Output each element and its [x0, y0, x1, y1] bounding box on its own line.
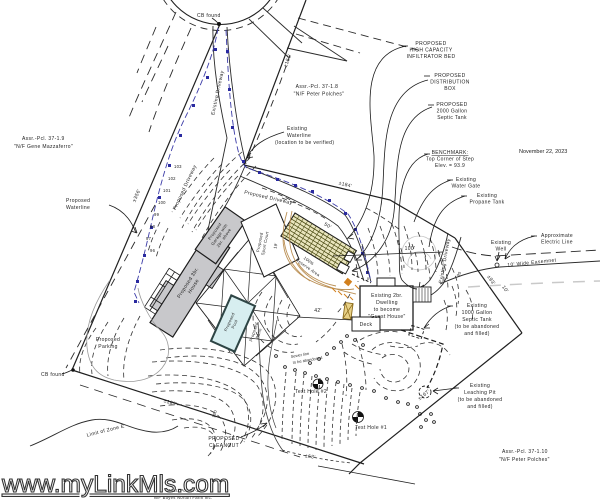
svg-text:CB found: CB found	[197, 13, 221, 19]
svg-text:100: 100	[158, 200, 166, 205]
svg-text:97: 97	[146, 236, 152, 241]
svg-text:Test Hole #1: Test Hole #1	[355, 425, 387, 431]
svg-text:PROPOSED2000 GallonSeptic Tank: PROPOSED2000 GallonSeptic Tank	[436, 102, 467, 121]
svg-text:103: 103	[174, 164, 182, 169]
svg-text:Existing 2br.Dwellingto become: Existing 2br.Dwellingto become"Guest Hou…	[368, 293, 405, 320]
svg-text:102: 102	[168, 176, 176, 181]
svg-text:ApproximateElectric Line: ApproximateElectric Line	[541, 233, 573, 246]
svg-text:42': 42'	[314, 308, 322, 314]
svg-text:Assr.-Pcl. 37-1.8"N/F Peter Po: Assr.-Pcl. 37-1.8"N/F Peter Polches"	[294, 84, 345, 98]
svg-text:ProposedWaterline: ProposedWaterline	[66, 198, 90, 211]
svg-text:96: 96	[150, 248, 156, 253]
svg-text:ExistingWater Gate: ExistingWater Gate	[452, 177, 481, 190]
svg-text:98: 98	[150, 224, 156, 229]
svg-text:PROPOSEDCLEANOUT: PROPOSEDCLEANOUT	[208, 436, 239, 449]
svg-text:CB found: CB found	[41, 372, 65, 378]
svg-text:www.myLinkMls.com: www.myLinkMls.com	[1, 471, 229, 498]
svg-text:Test Hole #2: Test Hole #2	[295, 389, 327, 395]
svg-text:November 22, 2023: November 22, 2023	[519, 149, 567, 155]
svg-text:101: 101	[163, 188, 171, 193]
svg-text:99: 99	[154, 212, 160, 217]
svg-text:ProposedParking: ProposedParking	[96, 337, 120, 350]
svg-text:100': 100'	[405, 246, 416, 252]
svg-text:Deck: Deck	[360, 322, 373, 328]
